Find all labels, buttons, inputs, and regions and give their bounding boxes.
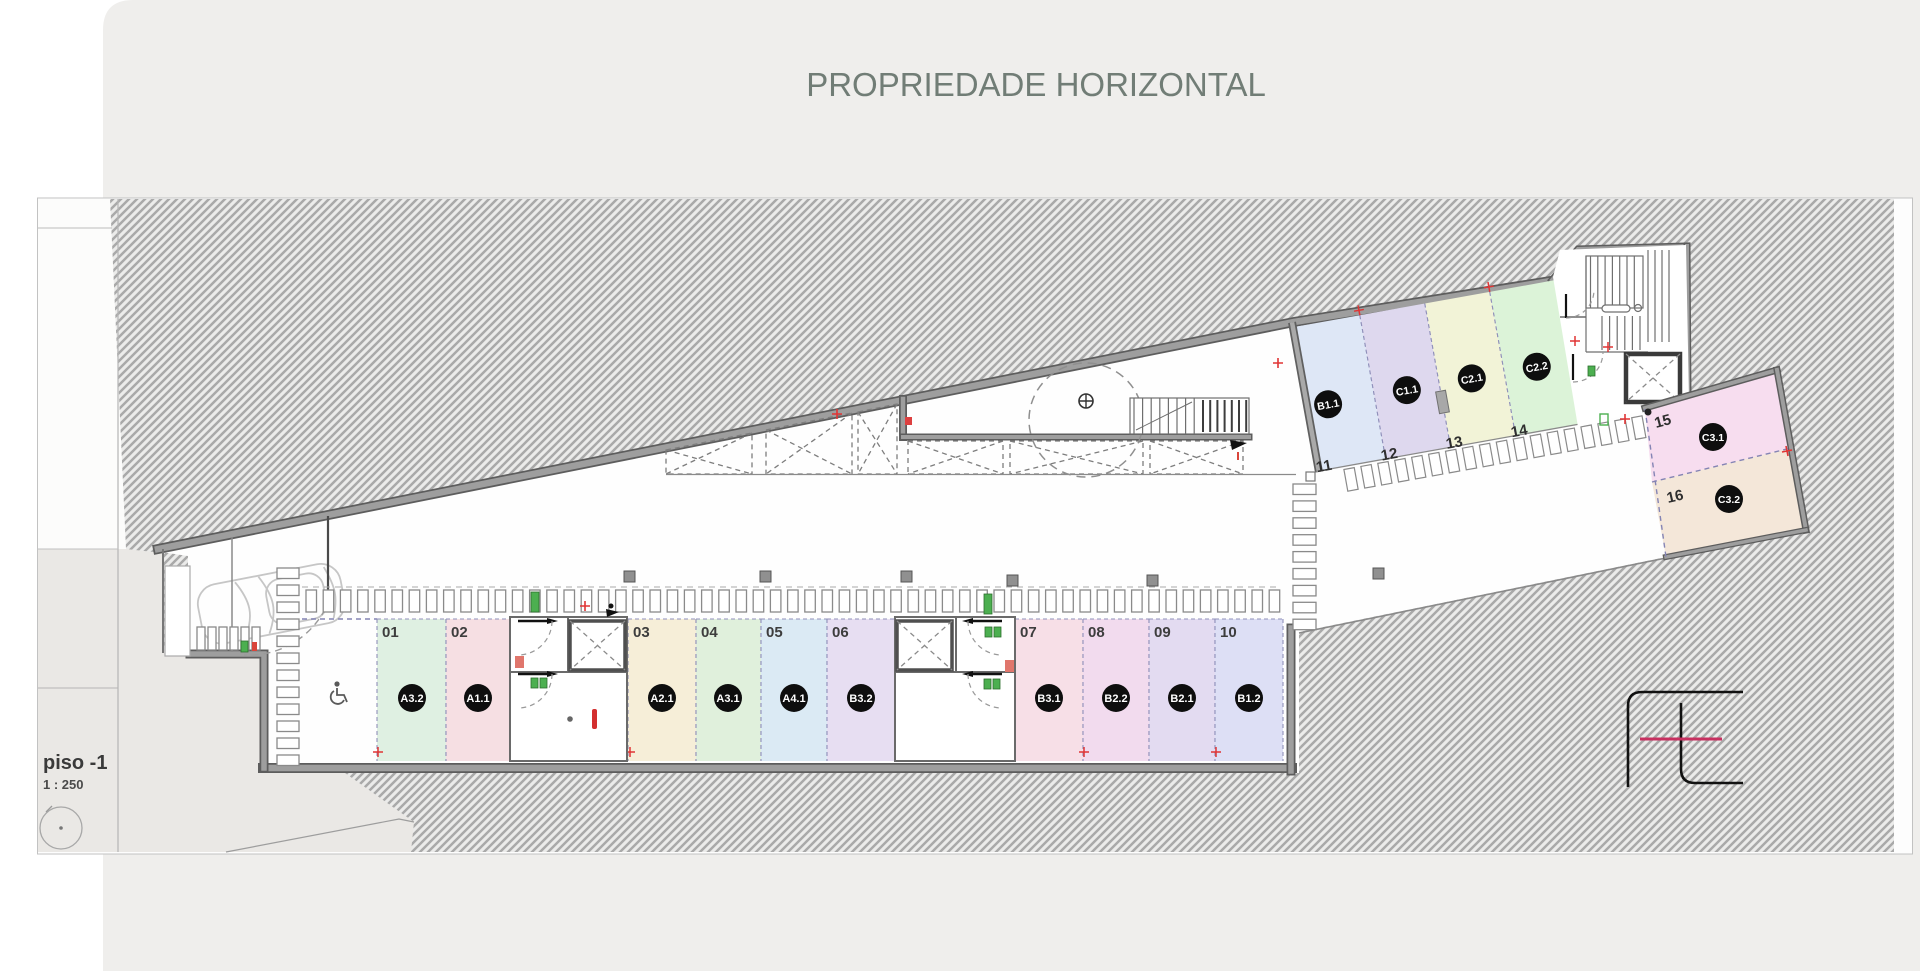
svg-text:11: 11 [1315, 457, 1334, 477]
svg-text:B1.2: B1.2 [1237, 693, 1260, 705]
svg-text:B3.2: B3.2 [849, 693, 872, 705]
svg-text:13: 13 [1445, 433, 1464, 453]
svg-text:04: 04 [701, 624, 718, 641]
svg-text:A2.1: A2.1 [650, 693, 673, 705]
svg-text:B2.2: B2.2 [1104, 693, 1127, 705]
svg-text:12: 12 [1380, 445, 1399, 465]
svg-text:PROPRIEDADE HORIZONTAL: PROPRIEDADE HORIZONTAL [806, 66, 1266, 103]
svg-text:05: 05 [766, 624, 783, 641]
svg-text:A3.2: A3.2 [400, 693, 423, 705]
svg-text:07: 07 [1020, 624, 1037, 641]
svg-text:A4.1: A4.1 [782, 693, 805, 705]
svg-text:10: 10 [1220, 624, 1237, 641]
svg-text:C3.1: C3.1 [1702, 432, 1724, 444]
svg-text:B3.1: B3.1 [1037, 693, 1060, 705]
svg-text:A1.1: A1.1 [466, 693, 489, 705]
svg-text:B2.1: B2.1 [1170, 693, 1193, 705]
svg-text:A3.1: A3.1 [716, 693, 739, 705]
svg-text:09: 09 [1154, 624, 1171, 641]
svg-text:C3.2: C3.2 [1718, 494, 1740, 506]
svg-text:01: 01 [382, 624, 399, 641]
svg-text:03: 03 [633, 624, 650, 641]
svg-text:1 : 250: 1 : 250 [43, 777, 83, 792]
svg-text:02: 02 [451, 624, 468, 641]
svg-text:piso -1: piso -1 [43, 752, 107, 774]
svg-text:06: 06 [832, 624, 849, 641]
svg-text:08: 08 [1088, 624, 1105, 641]
